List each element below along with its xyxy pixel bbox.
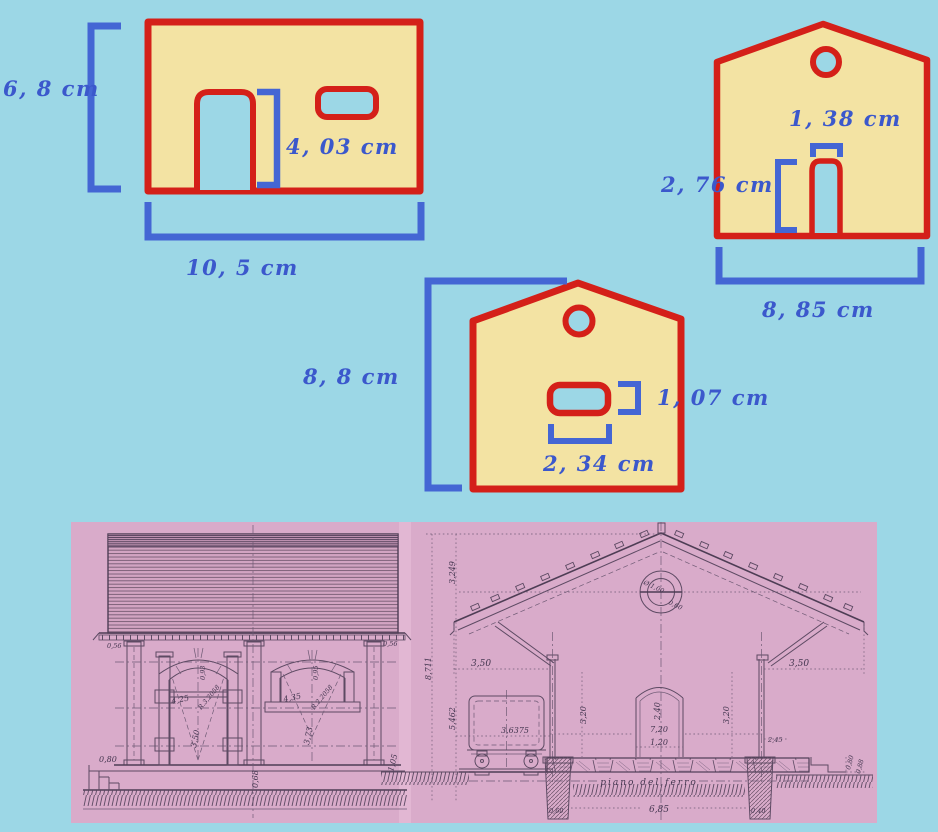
gable-bottom-window-width-label: 2, 34 cm [543, 451, 656, 476]
front-width-label: 10, 5 cm [186, 255, 299, 280]
dim-wagon-clearance: 3,6375 [501, 726, 529, 735]
gable-top-door-width-label: 1, 38 cm [789, 106, 902, 131]
dim-platform-height: 0,80 [99, 755, 117, 764]
gable-bottom-window-shape [550, 385, 608, 413]
gable-bottom-circle-hole [566, 308, 593, 335]
dim-overhang-left: 3,50 [471, 659, 491, 669]
gable-top-door-height-label: 2, 76 cm [661, 172, 774, 197]
gable-top-door-shape [812, 161, 840, 233]
front-height-label: 6, 8 cm [3, 76, 100, 101]
dim-eave-right: 0,56 [383, 640, 397, 648]
dim-pier-right: 0,40 [751, 807, 765, 815]
width-bracket-gable-top [719, 247, 921, 281]
dim-door-height-section: 2,40 [653, 702, 662, 721]
dim-eave-left: 0,56 [107, 642, 121, 650]
dim-wall-height-right: 3,20 [722, 706, 731, 724]
height-bracket-front [91, 26, 121, 189]
front-window-shape [318, 89, 376, 117]
ground-line-label: piano del ferro [600, 778, 698, 788]
dim-base-center: 0,68 [251, 770, 260, 788]
worksheet: 0,56 0,56 0,80 0,68 1,05 0,93 R.3,2058 4… [0, 0, 938, 832]
gable-wall-top-shape [717, 24, 927, 281]
dim-door-arch-rise: 0,93 [199, 666, 207, 680]
width-bracket-front [148, 202, 421, 237]
gable-bottom-window-height-label: 1, 07 cm [657, 385, 770, 410]
gable-bottom-height-label: 8, 8 cm [303, 364, 400, 389]
dim-door-width-section: 1,20 [650, 738, 668, 747]
dim-platform-offset: 2,45 [767, 736, 782, 744]
dim-eaves-height: 5,462 [448, 707, 457, 730]
dim-wall-height-left: 3,20 [579, 706, 588, 724]
front-wall-shape [91, 22, 421, 237]
dim-window-arch-rise: 0,95 [312, 666, 320, 680]
dim-pier-left: 0,60 [549, 807, 563, 815]
dim-roof-rise: 3,249 [448, 561, 457, 584]
dim-total-height: 8,711 [424, 657, 433, 680]
front-door-height-label: 4, 03 cm [286, 134, 399, 159]
dim-overhang-right: 3,50 [789, 659, 809, 669]
gable-top-circle-hole [813, 49, 839, 75]
gable-top-width-label: 8, 85 cm [762, 297, 875, 322]
front-wall-outline [148, 22, 420, 191]
front-door-shape [197, 92, 253, 190]
dim-inner-width: 7,20 [650, 725, 668, 734]
dim-foundation-span: 6,85 [649, 805, 669, 815]
blueprint-panel: 0,56 0,56 0,80 0,68 1,05 0,93 R.3,2058 4… [71, 522, 877, 823]
